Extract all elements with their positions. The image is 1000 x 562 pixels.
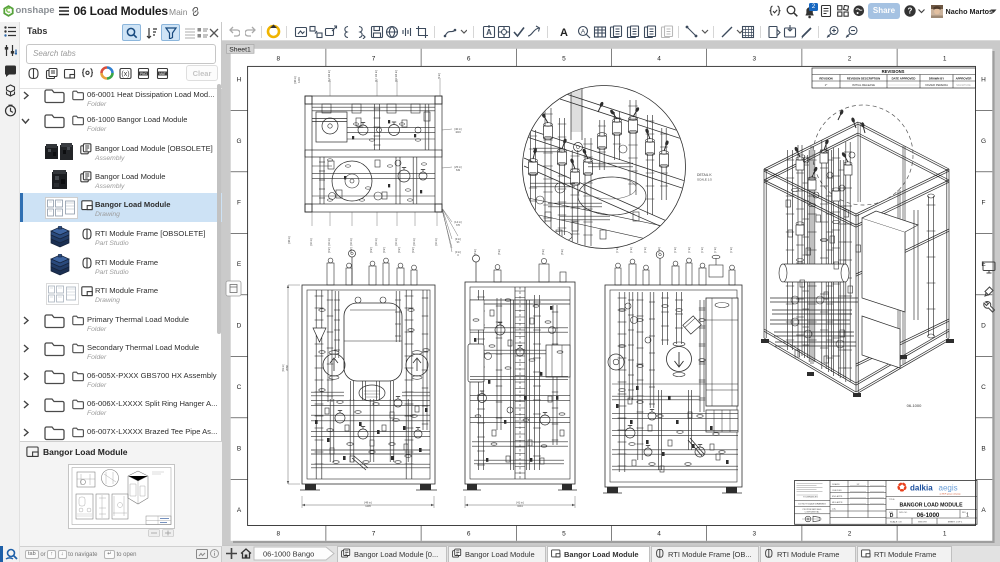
svg-text:D: D xyxy=(981,323,986,330)
svg-text:2: 2 xyxy=(848,55,852,62)
svg-text:[7 in]: [7 in] xyxy=(689,247,691,252)
svg-text:BANGOR LOAD MODULE: BANGOR LOAD MODULE xyxy=(899,503,963,509)
svg-text:Bangor Load Module: Bangor Load Module xyxy=(465,550,535,559)
svg-text:2068: 2068 xyxy=(286,365,289,371)
svg-text:RTI Module Frame [OB...: RTI Module Frame [OB... xyxy=(668,550,752,559)
svg-text:DO NOT SCALE DRAWING: DO NOT SCALE DRAWING xyxy=(798,503,826,506)
svg-text:3: 3 xyxy=(752,531,756,538)
svg-text:Q.A.: Q.A. xyxy=(832,508,836,511)
svg-text:8: 8 xyxy=(276,55,280,62)
svg-text:SHEET 1 OF 1: SHEET 1 OF 1 xyxy=(948,522,963,524)
svg-text:REVISION: REVISION xyxy=(819,76,832,80)
svg-text:A: A xyxy=(981,507,986,514)
svg-text:Bangor Load Module [0...: Bangor Load Module [0... xyxy=(354,550,438,559)
svg-text:[9 in]: [9 in] xyxy=(370,247,373,253)
svg-text:5: 5 xyxy=(562,55,566,62)
svg-text:PNG: PNG xyxy=(140,72,147,76)
svg-text:DRAWN BY: DRAWN BY xyxy=(929,76,944,80)
svg-text:7: 7 xyxy=(372,531,376,538)
svg-text:[9 in]: [9 in] xyxy=(328,247,331,253)
svg-text:SIGNATURE: SIGNATURE xyxy=(956,84,971,87)
svg-text:[10 in]: [10 in] xyxy=(350,238,353,245)
svg-text:[7 in]: [7 in] xyxy=(675,247,677,252)
svg-text:[8 in]: [8 in] xyxy=(499,249,501,254)
svg-text:SCALE 1:5: SCALE 1:5 xyxy=(697,178,712,182)
svg-text:370: 370 xyxy=(456,224,461,227)
svg-text:Bangor Load Module: Bangor Load Module xyxy=(564,550,639,559)
svg-text:CONFIDENTIAL: CONFIDENTIAL xyxy=(805,510,821,513)
svg-text:[19 3/4 in]: [19 3/4 in] xyxy=(394,70,398,82)
svg-text:[8 in]: [8 in] xyxy=(543,249,545,254)
svg-text:[17 1/2 in]: [17 1/2 in] xyxy=(374,70,378,82)
svg-text:A: A xyxy=(486,28,492,37)
svg-text:H: H xyxy=(981,77,986,84)
svg-text:[7 in]: [7 in] xyxy=(617,247,619,252)
svg-text:[7 in]: [7 in] xyxy=(645,247,647,252)
svg-text:?: ? xyxy=(908,7,913,16)
svg-text:A: A xyxy=(560,27,568,38)
svg-text:[46 in]: [46 in] xyxy=(293,76,297,83)
svg-text:SCALE: 1:8: SCALE: 1:8 xyxy=(890,521,902,524)
svg-text:[10 in]: [10 in] xyxy=(375,238,378,245)
svg-text:[9 in]: [9 in] xyxy=(398,247,401,253)
svg-text:[10 in]: [10 in] xyxy=(413,238,416,245)
svg-text:5: 5 xyxy=(562,531,566,538)
svg-text:DETAIL K: DETAIL K xyxy=(697,173,712,177)
svg-text:REVISION DESCRIPTION: REVISION DESCRIPTION xyxy=(847,76,880,80)
svg-text:A: A xyxy=(581,29,586,36)
svg-text:B: B xyxy=(981,446,985,453)
svg-text:6: 6 xyxy=(467,55,471,62)
svg-text:7: 7 xyxy=(372,55,376,62)
svg-text:dalkia: dalkia xyxy=(910,484,933,493)
svg-text:MAT: MAT xyxy=(159,72,166,76)
svg-text:TOLERANCES: TOLERANCES xyxy=(803,496,818,499)
svg-text:E: E xyxy=(237,261,242,268)
svg-text:[10 in]: [10 in] xyxy=(435,238,438,245)
svg-text:CHECKED: CHECKED xyxy=(832,490,842,492)
svg-text:1219: 1219 xyxy=(297,77,301,83)
svg-text:1: 1 xyxy=(966,513,969,519)
svg-text:1: 1 xyxy=(943,55,947,62)
svg-text:[9 in]: [9 in] xyxy=(412,247,415,253)
svg-text:G: G xyxy=(981,138,986,145)
svg-text:06-1000: 06-1000 xyxy=(907,403,922,408)
svg-text:WEIGHT:: WEIGHT: xyxy=(918,522,928,524)
svg-text:6: 6 xyxy=(467,531,471,538)
svg-text:XAVIER PEREIRA: XAVIER PEREIRA xyxy=(925,83,948,87)
svg-text:4: 4 xyxy=(657,55,661,62)
svg-text:[10 in]: [10 in] xyxy=(395,238,398,245)
svg-text:DWG. NO.: DWG. NO. xyxy=(899,512,908,514)
svg-text:Sheet1: Sheet1 xyxy=(229,46,251,53)
svg-text:[10 in]: [10 in] xyxy=(328,238,331,245)
svg-text:[81 in]: [81 in] xyxy=(281,364,285,372)
svg-text:[46 in]: [46 in] xyxy=(287,236,291,243)
svg-text:2: 2 xyxy=(848,531,852,538)
svg-text:DATE APPROVED: DATE APPROVED xyxy=(892,76,916,80)
svg-text:[8 in]: [8 in] xyxy=(562,249,564,254)
svg-text:[9 in]: [9 in] xyxy=(383,247,386,253)
svg-text:MFG APPR.: MFG APPR. xyxy=(832,501,843,504)
svg-text:1041: 1041 xyxy=(517,505,523,508)
svg-text:[49 in]: [49 in] xyxy=(364,501,372,505)
svg-text:3: 3 xyxy=(752,55,756,62)
svg-text:[9 in]: [9 in] xyxy=(350,247,353,253)
svg-text:TITLE:: TITLE: xyxy=(889,499,896,501)
svg-text:H: H xyxy=(237,77,242,84)
svg-text:[0 in]: [0 in] xyxy=(437,73,441,79)
svg-text:DRAWN: DRAWN xyxy=(832,483,840,486)
svg-text:ENG APPR.: ENG APPR. xyxy=(832,495,843,498)
svg-text:(x): (x) xyxy=(121,71,129,78)
svg-text:[7 in]: [7 in] xyxy=(659,247,661,252)
svg-text:G: G xyxy=(236,138,241,145)
svg-text:RTI Module Frame: RTI Module Frame xyxy=(874,550,936,559)
svg-text:[7 in]: [7 in] xyxy=(715,247,717,252)
svg-text:APPROVER: APPROVER xyxy=(956,76,972,80)
svg-text:[7 in]: [7 in] xyxy=(731,247,733,252)
svg-text:F: F xyxy=(237,200,241,207)
svg-text:[10 in]: [10 in] xyxy=(310,238,313,245)
svg-text:A: A xyxy=(237,507,242,514)
svg-text:[41 in]: [41 in] xyxy=(516,501,524,505)
svg-text:RTI Module Frame: RTI Module Frame xyxy=(777,550,839,559)
svg-text:8: 8 xyxy=(276,531,280,538)
svg-text:[12 3/4 in]: [12 3/4 in] xyxy=(327,70,331,82)
svg-text:[7 in]: [7 in] xyxy=(702,247,704,252)
svg-text:D: D xyxy=(237,323,242,330)
svg-text:REVISIONS: REVISIONS xyxy=(882,69,905,74)
svg-text:1: 1 xyxy=(943,531,947,538)
svg-text:C: C xyxy=(981,384,986,391)
svg-text:aegis: aegis xyxy=(939,484,958,493)
svg-text:an EDF group company: an EDF group company xyxy=(939,494,960,496)
svg-text:B: B xyxy=(237,446,241,453)
svg-text:1016: 1016 xyxy=(455,131,461,134)
svg-text:[7 in]: [7 in] xyxy=(631,247,633,252)
svg-text:INITIAL RELEASE: INITIAL RELEASE xyxy=(852,83,875,87)
svg-text:4: 4 xyxy=(657,531,661,538)
svg-text:F: F xyxy=(982,200,986,207)
svg-text:649: 649 xyxy=(456,169,461,172)
svg-text:C: C xyxy=(237,384,242,391)
svg-text:1245: 1245 xyxy=(365,505,371,508)
svg-text:06-1000 Bango: 06-1000 Bango xyxy=(263,550,314,559)
svg-text:[8 in]: [8 in] xyxy=(475,249,477,254)
